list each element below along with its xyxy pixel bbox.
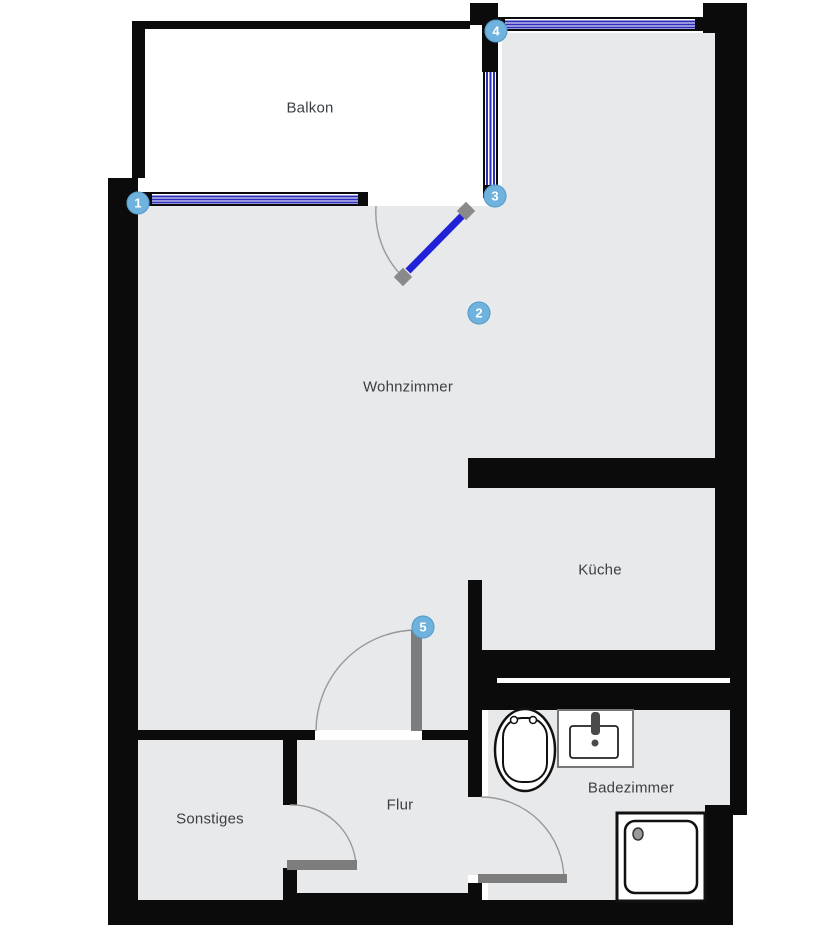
- room-label-badezimmer: Badezimmer: [588, 780, 674, 797]
- room-label-kueche: Küche: [578, 562, 622, 579]
- floor-plan-canvas: [0, 0, 834, 943]
- window-1: [142, 192, 368, 206]
- wall-segment: [132, 29, 145, 178]
- wall-segment: [468, 458, 717, 488]
- marker-3[interactable]: 3: [484, 185, 507, 208]
- floor-sonstiges-doorway: [283, 805, 297, 868]
- shower-icon: [617, 813, 705, 901]
- toilet-icon: [495, 709, 555, 791]
- marker-1[interactable]: 1: [127, 192, 150, 215]
- wall-segment: [468, 580, 482, 797]
- room-label-balkon: Balkon: [286, 100, 333, 117]
- room-label-wohnzimmer: Wohnzimmer: [363, 379, 453, 396]
- badezimmer-door-leaf: [478, 874, 567, 883]
- wall-segment: [108, 900, 733, 925]
- marker-5[interactable]: 5: [412, 616, 435, 639]
- floor-kueche-passage: [468, 488, 482, 580]
- wall-segment: [715, 3, 747, 683]
- wall-segment: [730, 650, 747, 815]
- wall-segment: [482, 650, 730, 678]
- wall-seam: [497, 678, 730, 683]
- wall-segment: [108, 178, 138, 925]
- wall-segment: [488, 683, 730, 710]
- wall-segment: [132, 21, 470, 29]
- floor-flur: [297, 740, 468, 893]
- wall-segment: [422, 730, 468, 740]
- room-label-flur: Flur: [387, 797, 414, 814]
- flur-door-leaf: [411, 630, 422, 731]
- floor-badezimmer-doorway: [468, 797, 488, 875]
- wall-segment: [283, 893, 480, 903]
- room-label-sonstiges: Sonstiges: [176, 811, 244, 828]
- floor-wohnzimmer-upper: [138, 206, 715, 458]
- window-4: [497, 17, 705, 31]
- marker-2[interactable]: 2: [468, 302, 491, 325]
- sonstiges-door-leaf: [287, 860, 357, 870]
- window-3: [483, 72, 498, 198]
- sink-icon: [558, 710, 633, 767]
- floor-wohnzimmer-right: [502, 33, 715, 206]
- marker-4[interactable]: 4: [485, 20, 508, 43]
- floor-plan: Balkon Wohnzimmer Küche Flur Sonstiges B…: [0, 0, 834, 943]
- wall-segment: [705, 805, 733, 925]
- wall-segment: [283, 732, 297, 805]
